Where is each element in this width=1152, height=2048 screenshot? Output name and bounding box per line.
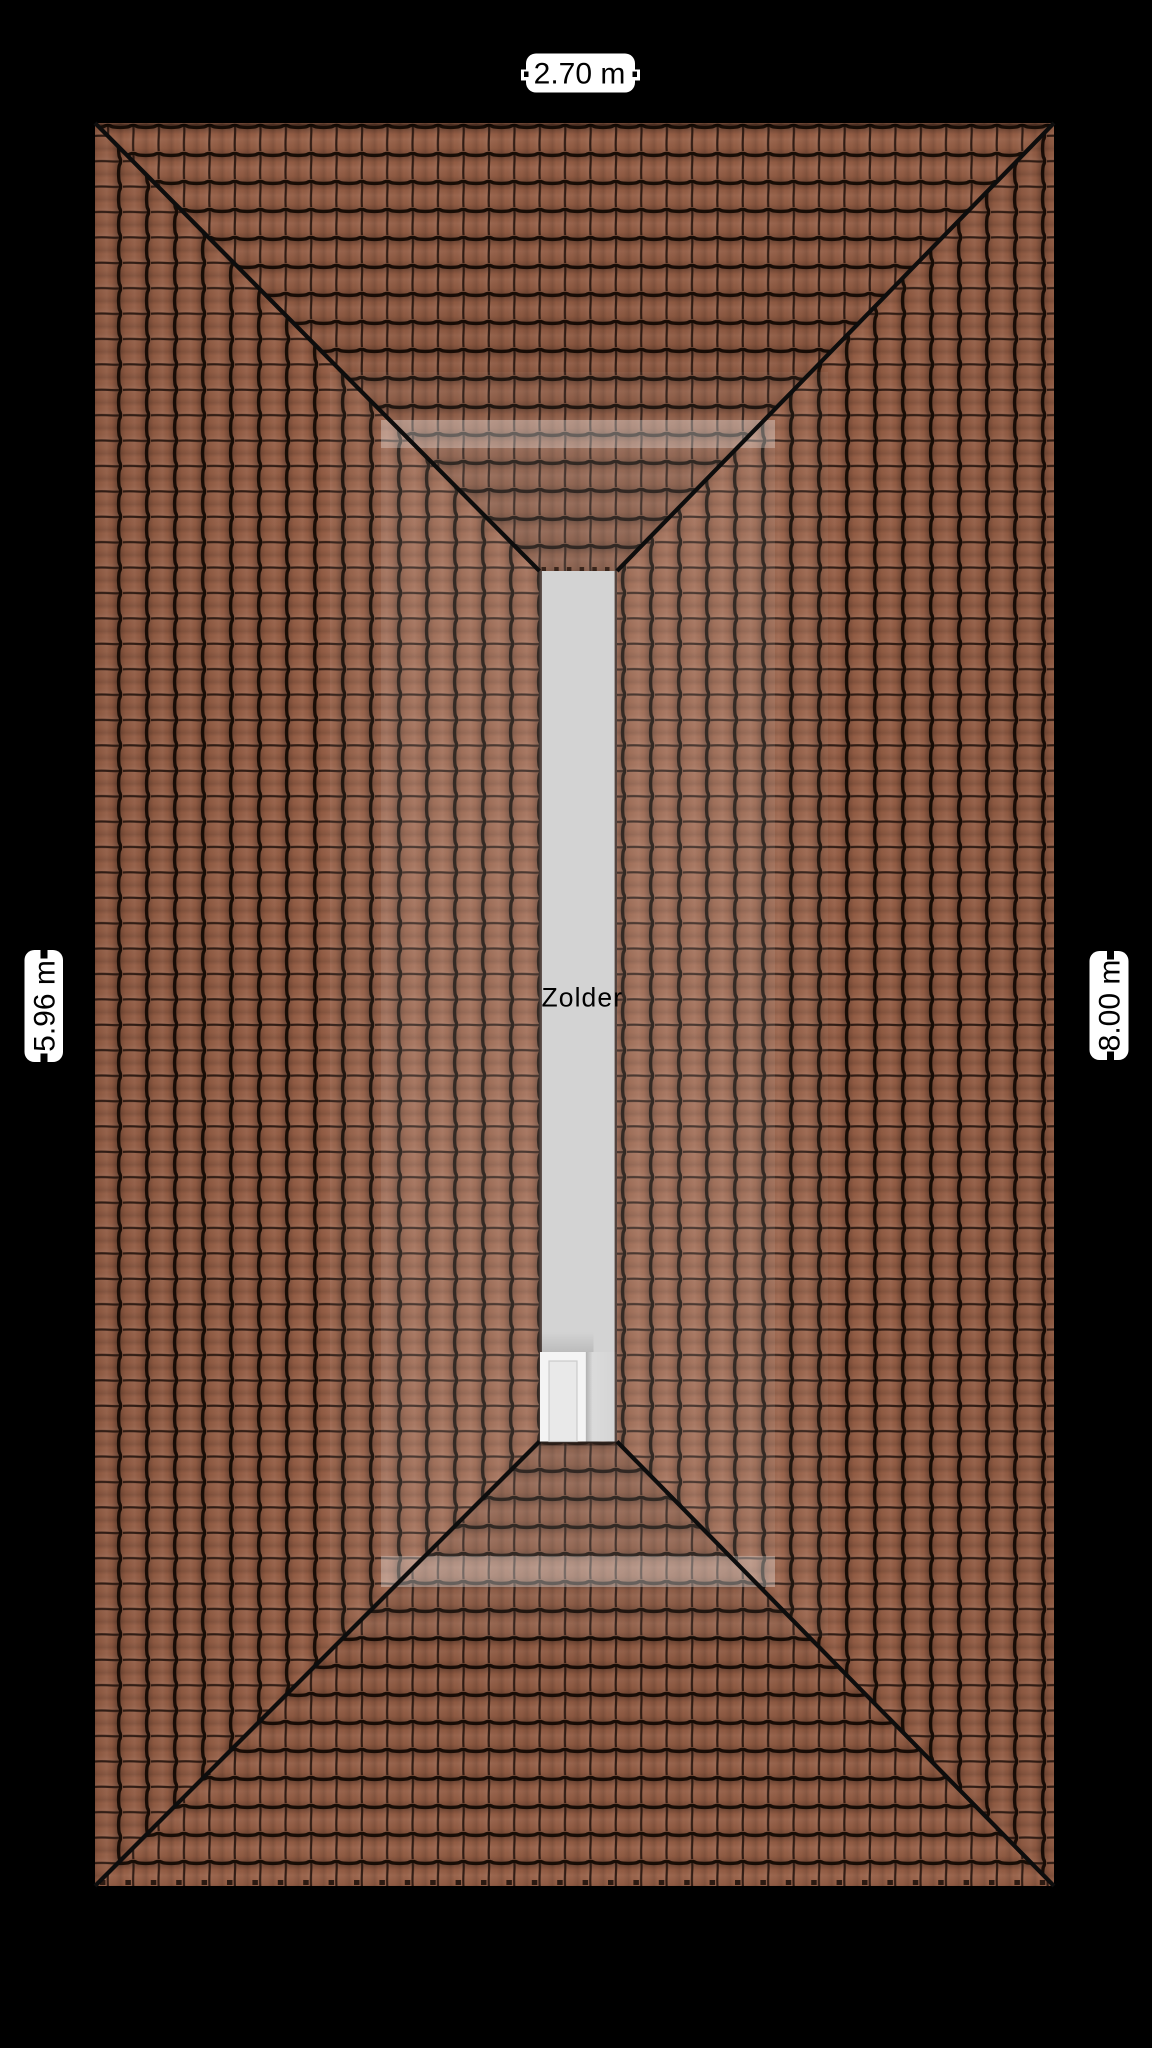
svg-text:2.70 m: 2.70 m	[534, 58, 626, 91]
svg-text:5.96 m: 5.96 m	[29, 960, 62, 1052]
svg-text:8.00 m: 8.00 m	[1094, 960, 1127, 1052]
svg-text:Zolder: Zolder	[541, 983, 623, 1013]
